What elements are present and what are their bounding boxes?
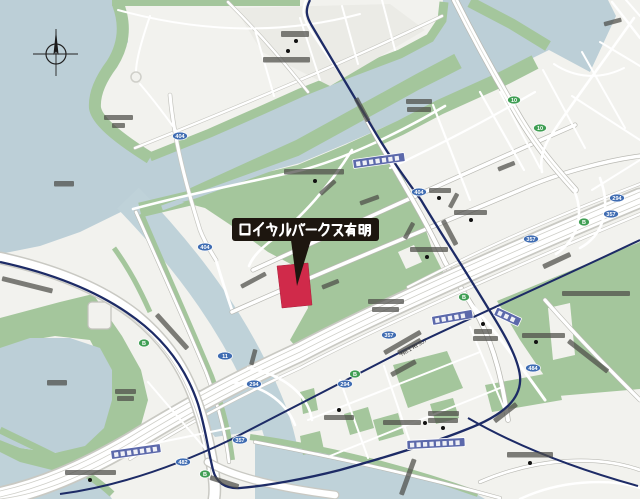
svg-text:B: B <box>582 220 586 226</box>
svg-text:484: 484 <box>528 366 538 372</box>
svg-text:11: 11 <box>222 354 228 360</box>
svg-text:404: 404 <box>414 190 424 196</box>
svg-text:357: 357 <box>384 333 393 339</box>
svg-text:294: 294 <box>249 382 259 388</box>
svg-text:294: 294 <box>612 196 622 202</box>
svg-text:10: 10 <box>537 126 543 132</box>
svg-text:294: 294 <box>340 382 350 388</box>
svg-text:404: 404 <box>175 134 185 140</box>
svg-text:B: B <box>462 295 466 301</box>
svg-text:10: 10 <box>511 98 517 104</box>
svg-text:482: 482 <box>178 460 187 466</box>
svg-text:B: B <box>142 341 146 347</box>
svg-text:357: 357 <box>606 212 615 218</box>
svg-text:B: B <box>203 472 207 478</box>
svg-text:357: 357 <box>526 237 535 243</box>
svg-text:B: B <box>353 372 357 378</box>
svg-text:357: 357 <box>235 438 244 444</box>
svg-text:404: 404 <box>200 245 210 251</box>
